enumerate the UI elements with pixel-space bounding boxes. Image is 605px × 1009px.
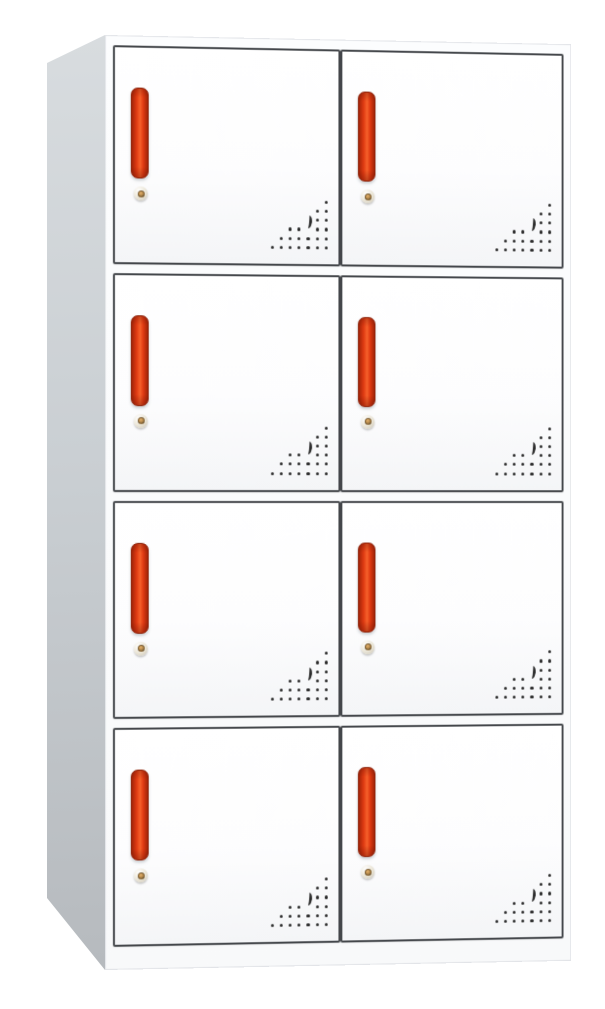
vent-hole-dot <box>539 436 542 439</box>
vent-hole-dot <box>280 237 283 240</box>
ventilation-holes <box>494 650 551 700</box>
vent-hole-dot <box>271 246 274 249</box>
vent-hole-dot <box>280 689 283 692</box>
vent-hole-dot <box>316 923 319 926</box>
vent-hole-dot <box>539 239 542 242</box>
door-handle <box>358 767 376 857</box>
keyhole-lock <box>134 414 148 428</box>
vent-hole-dot <box>539 230 542 233</box>
vent-hole-dot <box>522 696 525 699</box>
ventilation-holes <box>270 652 328 702</box>
vent-hole-dot <box>289 237 292 240</box>
vent-hole-dot <box>325 896 328 899</box>
vent-hole-dot <box>307 463 310 466</box>
keyhole-icon <box>364 643 371 650</box>
vent-crescent-cutout <box>528 442 536 455</box>
ventilation-holes <box>270 426 328 476</box>
vent-hole-dot <box>530 239 533 242</box>
vent-hole-dot <box>513 472 516 475</box>
vent-hole-dot <box>495 248 498 251</box>
vent-hole-dot <box>289 915 292 918</box>
vent-hole-dot <box>539 901 542 904</box>
vent-hole-dot <box>548 231 551 234</box>
vent-hole-dot <box>539 445 542 448</box>
vent-hole-dot <box>289 246 292 249</box>
vent-hole-dot <box>522 239 525 242</box>
vent-hole-dot <box>325 219 328 222</box>
vent-hole-dot <box>289 472 292 475</box>
vent-hole-dot <box>495 920 498 923</box>
door-handle <box>358 542 376 632</box>
vent-hole-dot <box>307 698 310 701</box>
keyhole-icon <box>137 872 144 879</box>
vent-hole-dot <box>307 237 310 240</box>
vent-hole-dot <box>548 696 551 699</box>
vent-hole-dot <box>539 659 542 662</box>
vent-hole-dot <box>530 696 533 699</box>
vent-crescent-cutout <box>528 218 536 231</box>
vent-hole-dot <box>513 687 516 690</box>
vent-hole-dot <box>539 919 542 922</box>
vent-hole-dot <box>325 201 328 204</box>
vent-hole-dot <box>522 248 525 251</box>
door-handle <box>131 87 149 178</box>
vent-hole-dot <box>325 463 328 466</box>
locker-door-5 <box>113 501 340 720</box>
ventilation-holes <box>494 427 551 476</box>
vent-hole-dot <box>298 237 301 240</box>
vent-hole-dot <box>316 896 319 899</box>
vent-hole-dot <box>325 679 328 682</box>
vent-hole-dot <box>298 688 301 691</box>
vent-hole-dot <box>316 697 319 700</box>
ventilation-holes <box>494 203 551 253</box>
ventilation-holes <box>494 874 551 924</box>
vent-hole-dot <box>539 678 542 681</box>
vent-hole-dot <box>530 919 533 922</box>
vent-hole-dot <box>539 696 542 699</box>
vent-hole-dot <box>316 905 319 908</box>
vent-hole-dot <box>280 924 283 927</box>
vent-hole-dot <box>325 652 328 655</box>
vent-hole-dot <box>504 463 507 466</box>
vent-hole-dot <box>325 697 328 700</box>
keyhole-icon <box>137 417 144 424</box>
vent-hole-dot <box>548 445 551 448</box>
vent-hole-dot <box>513 248 516 251</box>
vent-hole-dot <box>548 249 551 252</box>
vent-hole-dot <box>280 472 283 475</box>
door-handle <box>131 542 149 633</box>
vent-hole-dot <box>495 472 498 475</box>
vent-hole-dot <box>539 463 542 466</box>
keyhole-icon <box>364 869 371 876</box>
vent-hole-dot <box>298 914 301 917</box>
keyhole-icon <box>364 418 371 425</box>
vent-hole-dot <box>539 221 542 224</box>
vent-hole-dot <box>298 453 301 456</box>
locker-door-8 <box>340 724 563 943</box>
vent-hole-dot <box>495 696 498 699</box>
cabinet-front-face <box>105 35 571 970</box>
vent-hole-dot <box>522 463 525 466</box>
vent-hole-dot <box>548 910 551 913</box>
vent-hole-dot <box>298 472 301 475</box>
vent-crescent-cutout <box>304 667 312 681</box>
vent-hole-dot <box>548 454 551 457</box>
vent-hole-dot <box>307 688 310 691</box>
vent-hole-dot <box>548 668 551 671</box>
vent-hole-dot <box>325 877 328 880</box>
vent-hole-dot <box>307 914 310 917</box>
vent-hole-dot <box>298 679 301 682</box>
vent-hole-dot <box>325 923 328 926</box>
vent-hole-dot <box>539 892 542 895</box>
vent-hole-dot <box>325 905 328 908</box>
vent-hole-dot <box>316 219 319 222</box>
vent-hole-dot <box>539 883 542 886</box>
keyhole-lock <box>361 415 375 429</box>
vent-hole-dot <box>522 910 525 913</box>
vent-hole-dot <box>325 661 328 664</box>
vent-hole-dot <box>316 237 319 240</box>
vent-hole-dot <box>289 905 292 908</box>
locker-door-4 <box>340 275 563 492</box>
vent-hole-dot <box>316 454 319 457</box>
vent-hole-dot <box>548 222 551 225</box>
vent-crescent-cutout <box>528 889 536 902</box>
vent-crescent-cutout <box>304 215 312 229</box>
vent-hole-dot <box>289 453 292 456</box>
vent-hole-dot <box>325 210 328 213</box>
vent-hole-dot <box>316 444 319 447</box>
vent-hole-dot <box>530 248 533 251</box>
vent-hole-dot <box>522 454 525 457</box>
vent-hole-dot <box>289 924 292 927</box>
vent-hole-dot <box>298 923 301 926</box>
keyhole-lock <box>134 869 148 883</box>
vent-hole-dot <box>522 678 525 681</box>
keyhole-lock <box>361 189 375 203</box>
vent-hole-dot <box>316 435 319 438</box>
vent-hole-dot <box>522 687 525 690</box>
vent-hole-dot <box>316 472 319 475</box>
vent-hole-dot <box>325 237 328 240</box>
vent-hole-dot <box>289 679 292 682</box>
vent-hole-dot <box>298 698 301 701</box>
vent-hole-dot <box>271 472 274 475</box>
door-handle <box>131 770 149 861</box>
vent-hole-dot <box>539 249 542 252</box>
keyhole-icon <box>137 645 144 652</box>
door-handle <box>131 315 149 406</box>
vent-hole-dot <box>280 463 283 466</box>
vent-hole-dot <box>513 902 516 905</box>
vent-hole-dot <box>325 246 328 249</box>
vent-hole-dot <box>316 670 319 673</box>
vent-hole-dot <box>325 688 328 691</box>
vent-hole-dot <box>548 677 551 680</box>
vent-hole-dot <box>307 246 310 249</box>
vent-hole-dot <box>289 689 292 692</box>
vent-hole-dot <box>504 472 507 475</box>
keyhole-icon <box>364 193 371 200</box>
keyhole-lock <box>134 641 148 655</box>
vent-hole-dot <box>522 472 525 475</box>
door-handle <box>358 91 376 181</box>
product-photo-canvas <box>0 0 605 1009</box>
vent-hole-dot <box>530 472 533 475</box>
vent-hole-dot <box>539 212 542 215</box>
vent-hole-dot <box>271 924 274 927</box>
vent-hole-dot <box>271 698 274 701</box>
vent-hole-dot <box>548 203 551 206</box>
vent-hole-dot <box>548 883 551 886</box>
vent-hole-dot <box>316 463 319 466</box>
vent-hole-dot <box>504 248 507 251</box>
vent-hole-dot <box>325 914 328 917</box>
vent-hole-dot <box>504 911 507 914</box>
vent-hole-dot <box>504 920 507 923</box>
vent-hole-dot <box>325 435 328 438</box>
locker-door-7 <box>113 726 340 947</box>
vent-hole-dot <box>513 454 516 457</box>
vent-hole-dot <box>325 444 328 447</box>
vent-hole-dot <box>325 228 328 231</box>
vent-hole-dot <box>316 679 319 682</box>
vent-hole-dot <box>316 688 319 691</box>
vent-hole-dot <box>316 914 319 917</box>
vent-hole-dot <box>289 698 292 701</box>
locker-door-6 <box>340 501 563 718</box>
vent-crescent-cutout <box>528 665 536 678</box>
vent-hole-dot <box>539 454 542 457</box>
vent-hole-dot <box>548 687 551 690</box>
vent-hole-dot <box>522 230 525 233</box>
ventilation-holes <box>270 877 328 928</box>
vent-hole-dot <box>325 887 328 890</box>
vent-hole-dot <box>513 920 516 923</box>
door-handle <box>358 317 376 407</box>
vent-hole-dot <box>548 212 551 215</box>
vent-hole-dot <box>504 239 507 242</box>
vent-hole-dot <box>548 463 551 466</box>
vent-hole-dot <box>539 687 542 690</box>
vent-hole-dot <box>530 687 533 690</box>
vent-hole-dot <box>548 659 551 662</box>
vent-hole-dot <box>548 472 551 475</box>
vent-hole-dot <box>548 892 551 895</box>
cabinet-side-panel <box>47 35 105 970</box>
keyhole-icon <box>137 190 144 197</box>
vent-hole-dot <box>548 436 551 439</box>
vent-hole-dot <box>530 463 533 466</box>
vent-hole-dot <box>513 463 516 466</box>
vent-hole-dot <box>280 246 283 249</box>
locker-door-1 <box>113 45 340 266</box>
vent-hole-dot <box>325 472 328 475</box>
vent-hole-dot <box>530 910 533 913</box>
vent-hole-dot <box>548 901 551 904</box>
locker-door-2 <box>340 50 563 269</box>
keyhole-lock <box>134 186 148 200</box>
vent-hole-dot <box>298 228 301 231</box>
vent-hole-dot <box>280 698 283 701</box>
vent-hole-dot <box>548 650 551 653</box>
vent-hole-dot <box>298 463 301 466</box>
door-grid <box>113 45 564 947</box>
vent-hole-dot <box>513 239 516 242</box>
vent-hole-dot <box>539 472 542 475</box>
vent-hole-dot <box>316 887 319 890</box>
keyhole-lock <box>361 640 375 654</box>
vent-hole-dot <box>548 874 551 877</box>
keyhole-lock <box>361 865 375 879</box>
vent-hole-dot <box>504 696 507 699</box>
vent-hole-dot <box>539 910 542 913</box>
vent-hole-dot <box>539 669 542 672</box>
vent-hole-dot <box>513 230 516 233</box>
vent-hole-dot <box>325 670 328 673</box>
vent-hole-dot <box>513 678 516 681</box>
vent-hole-dot <box>325 426 328 429</box>
vent-hole-dot <box>316 228 319 231</box>
vent-hole-dot <box>513 911 516 914</box>
vent-hole-dot <box>316 210 319 213</box>
locker-door-3 <box>113 273 340 492</box>
vent-hole-dot <box>504 687 507 690</box>
vent-hole-dot <box>280 915 283 918</box>
vent-hole-dot <box>513 696 516 699</box>
ventilation-holes <box>270 200 328 250</box>
vent-hole-dot <box>307 472 310 475</box>
vent-hole-dot <box>289 227 292 230</box>
vent-hole-dot <box>298 905 301 908</box>
vent-hole-dot <box>522 901 525 904</box>
vent-hole-dot <box>307 923 310 926</box>
vent-hole-dot <box>325 454 328 457</box>
vent-hole-dot <box>548 427 551 430</box>
vent-hole-dot <box>548 240 551 243</box>
vent-hole-dot <box>522 919 525 922</box>
vent-hole-dot <box>289 463 292 466</box>
vent-hole-dot <box>298 246 301 249</box>
vent-crescent-cutout <box>304 893 312 906</box>
vent-hole-dot <box>548 919 551 922</box>
vent-hole-dot <box>316 246 319 249</box>
vent-hole-dot <box>316 661 319 664</box>
vent-crescent-cutout <box>304 441 312 455</box>
